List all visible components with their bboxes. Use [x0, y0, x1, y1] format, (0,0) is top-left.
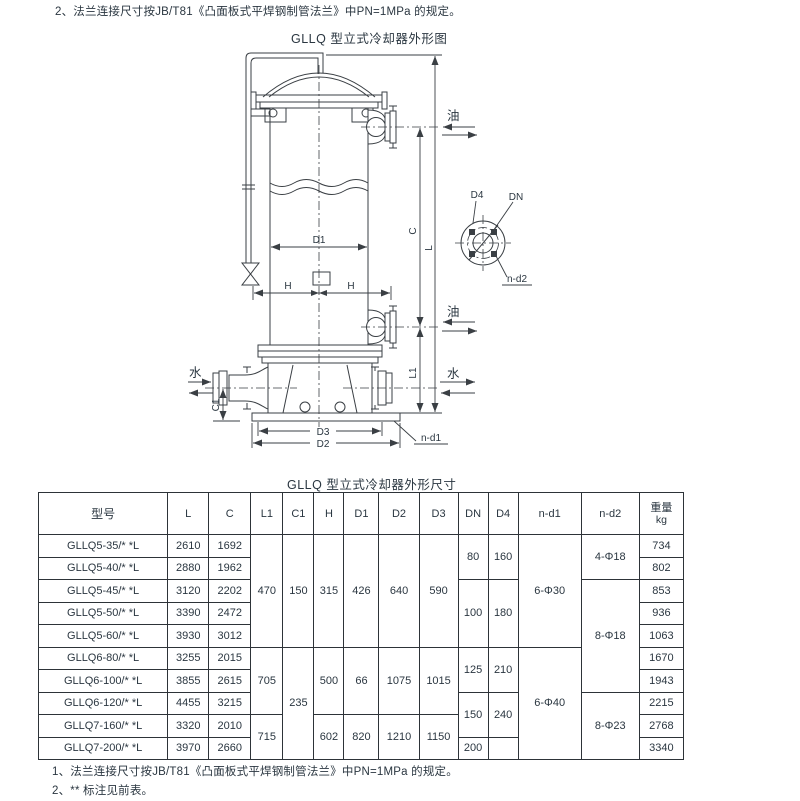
dim-label-h-left: H: [284, 281, 291, 292]
column-header: 型号: [39, 493, 168, 535]
table-cell: 4455: [168, 692, 209, 715]
cell-model: GLLQ6-80/* *L: [39, 647, 168, 670]
flange-detail: D4 DN n-d2: [455, 190, 532, 285]
dim-c: C: [408, 128, 420, 326]
oil-label-middle: 油: [447, 305, 460, 319]
cell-model: GLLQ5-35/* *L: [39, 535, 168, 558]
bottom-note-2: 2、** 标注见前表。: [52, 782, 153, 798]
table-cell: 100: [458, 580, 488, 648]
table-cell: 3340: [639, 737, 683, 760]
water-flow-right: 水: [440, 367, 475, 393]
table-cell: 2202: [209, 580, 251, 603]
table-cell: 200: [458, 737, 488, 760]
column-header: D1: [344, 493, 379, 535]
dim-label-c1: C1: [211, 398, 222, 411]
dim-label-l: L: [424, 245, 435, 251]
table-cell: 210: [488, 647, 518, 692]
table-cell: 2472: [209, 602, 251, 625]
table-cell: 1962: [209, 557, 251, 580]
table-cell: [488, 737, 518, 760]
table-cell: 640: [379, 535, 419, 648]
column-header: n-d1: [518, 493, 581, 535]
table-cell: 705: [251, 647, 283, 715]
table-cell: 3930: [168, 625, 209, 648]
table-title: GLLQ 型立式冷却器外形尺寸: [287, 474, 456, 493]
bottom-note-1: 1、法兰连接尺寸按JB/T81《凸面板式平焊钢制管法兰》中PN=1MPa 的规定…: [52, 763, 458, 779]
column-header: DN: [458, 493, 488, 535]
table-cell: 1150: [419, 715, 458, 760]
dim-label-h-right: H: [347, 281, 354, 292]
table-cell: 853: [639, 580, 683, 603]
base-plate: [252, 413, 400, 421]
dim-label-c: C: [408, 227, 419, 234]
cell-model: GLLQ5-45/* *L: [39, 580, 168, 603]
dim-label-l1: L1: [408, 367, 419, 379]
cell-model: GLLQ5-40/* *L: [39, 557, 168, 580]
table-cell: 3215: [209, 692, 251, 715]
cell-model: GLLQ7-200/* *L: [39, 737, 168, 760]
table-cell: 8-Φ23: [581, 692, 639, 760]
table-cell: 602: [314, 715, 344, 760]
table-cell: 2768: [639, 715, 683, 738]
cell-model: GLLQ5-50/* *L: [39, 602, 168, 625]
valve-icon: [242, 263, 259, 274]
table-cell: 2615: [209, 670, 251, 693]
cell-model: GLLQ6-100/* *L: [39, 670, 168, 693]
table-cell: 2215: [639, 692, 683, 715]
water-label-right: 水: [447, 367, 460, 381]
table-cell: 590: [419, 535, 458, 648]
dim-label-d1: D1: [313, 235, 326, 246]
dim-label-d2: D2: [317, 439, 330, 450]
nameplate: [313, 272, 330, 285]
table-cell: 1670: [639, 647, 683, 670]
table-cell: 426: [344, 535, 379, 648]
table-cell: 315: [314, 535, 344, 648]
dim-label-n-d1: n-d1: [421, 433, 441, 444]
table-header-row: 型号LCL1C1HD1D2D3DND4n-d1n-d2重量kg: [39, 493, 684, 535]
column-header: C1: [283, 493, 314, 535]
table-cell: 6-Φ40: [518, 647, 581, 760]
dim-h: H H: [253, 281, 391, 300]
cell-model: GLLQ5-60/* *L: [39, 625, 168, 648]
table-cell: 1210: [379, 715, 419, 760]
table-cell: 6-Φ30: [518, 535, 581, 648]
column-header: 重量kg: [639, 493, 683, 535]
table-cell: 2880: [168, 557, 209, 580]
column-header: L: [168, 493, 209, 535]
dimension-table: 型号LCL1C1HD1D2D3DND4n-d1n-d2重量kg GLLQ5-35…: [38, 492, 684, 760]
table-cell: 66: [344, 647, 379, 715]
table-cell: 8-Φ18: [581, 580, 639, 693]
table-row: GLLQ5-35/* *L261016924701503154266405908…: [39, 535, 684, 558]
dim-label-n-d2: n-d2: [507, 274, 527, 285]
water-flow-left: 水: [188, 366, 213, 393]
table-cell: 2010: [209, 715, 251, 738]
table-cell: 715: [251, 715, 283, 760]
dim-d3: D3: [258, 422, 382, 438]
oil-nozzle-upper: [361, 106, 441, 148]
table-cell: 1063: [639, 625, 683, 648]
oil-flow-lower: 油: [442, 305, 477, 331]
table-cell: 80: [458, 535, 488, 580]
table-cell: 150: [283, 535, 314, 648]
table-cell: 125: [458, 647, 488, 692]
dim-label-d3: D3: [317, 427, 330, 438]
dim-label-d4: D4: [471, 190, 484, 201]
table-cell: 936: [639, 602, 683, 625]
table-cell: 2610: [168, 535, 209, 558]
anchor-bolt-callout: n-d1: [394, 421, 448, 444]
column-header: C: [209, 493, 251, 535]
column-header: H: [314, 493, 344, 535]
table-cell: 235: [283, 647, 314, 760]
oil-flow-upper: 油: [442, 109, 477, 135]
oil-label-top: 油: [447, 109, 460, 123]
table-cell: 820: [344, 715, 379, 760]
column-header: D2: [379, 493, 419, 535]
table-cell: 2015: [209, 647, 251, 670]
cooler-outline-drawing: D1 H H: [185, 45, 585, 470]
table-cell: 500: [314, 647, 344, 715]
table-cell: 470: [251, 535, 283, 648]
table-cell: 3255: [168, 647, 209, 670]
table-cell: 3855: [168, 670, 209, 693]
page: { "page": { "top_note": "2、法兰连接尺寸按JB/T81…: [0, 0, 800, 801]
table-cell: 180: [488, 580, 518, 648]
cell-model: GLLQ6-120/* *L: [39, 692, 168, 715]
table-cell: 1015: [419, 647, 458, 715]
table-cell: 802: [639, 557, 683, 580]
table-cell: 3012: [209, 625, 251, 648]
table-cell: 4-Φ18: [581, 535, 639, 580]
column-header: L1: [251, 493, 283, 535]
column-header: D3: [419, 493, 458, 535]
cell-model: GLLQ7-160/* *L: [39, 715, 168, 738]
top-note: 2、法兰连接尺寸按JB/T81《凸面板式平焊钢制管法兰》中PN=1MPa 的规定…: [55, 3, 461, 19]
dim-label-dn: DN: [509, 192, 523, 203]
table-cell: 3320: [168, 715, 209, 738]
table-cell: 160: [488, 535, 518, 580]
table-cell: 3120: [168, 580, 209, 603]
column-header: n-d2: [581, 493, 639, 535]
oil-nozzle-lower: [361, 306, 441, 348]
tube-sheet-flanges: [258, 345, 382, 363]
table-cell: 1075: [379, 647, 419, 715]
table-cell: 1943: [639, 670, 683, 693]
table-cell: 3390: [168, 602, 209, 625]
table-cell: 150: [458, 692, 488, 737]
table-cell: 240: [488, 692, 518, 737]
table-cell: 2660: [209, 737, 251, 760]
table-cell: 734: [639, 535, 683, 558]
table-cell: 1692: [209, 535, 251, 558]
dome-cover: [251, 73, 387, 122]
column-header: D4: [488, 493, 518, 535]
water-label-left: 水: [189, 366, 202, 380]
dim-l1: L1: [408, 328, 420, 412]
table-cell: 3970: [168, 737, 209, 760]
dim-d1: D1: [271, 235, 367, 247]
